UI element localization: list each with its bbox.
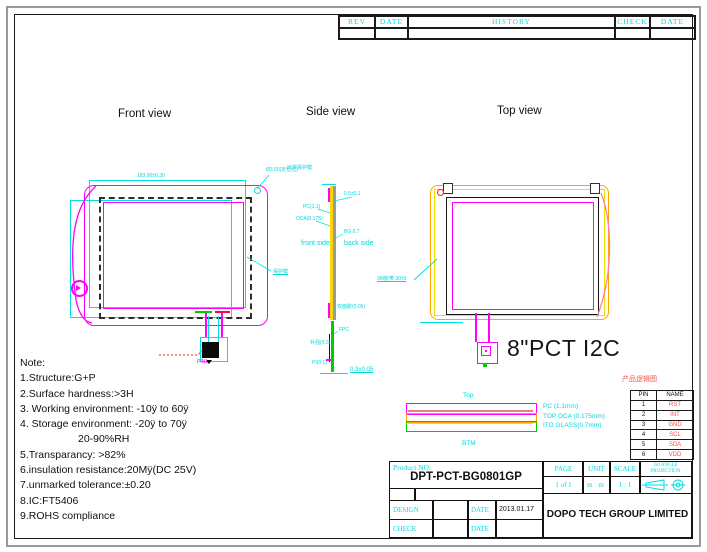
top-dim-line bbox=[420, 322, 463, 323]
scale-value-cell: 1 : 1 bbox=[609, 476, 641, 494]
side-back-side-label: back side bbox=[344, 240, 374, 247]
history-label: HISTORY bbox=[492, 17, 531, 26]
front-bond-mark-red bbox=[215, 311, 230, 313]
projection-symbol-cell bbox=[639, 476, 692, 494]
divider bbox=[414, 489, 416, 500]
ship-film-label: 出货保护膜 bbox=[287, 166, 312, 172]
side-fpc-label: FPC bbox=[339, 328, 349, 334]
note-line: 8.IC:FT5406 bbox=[20, 494, 380, 509]
notes-block: Note: 1.Structure:G+P 2.Surface hardness… bbox=[20, 356, 380, 524]
pin-number: 5 bbox=[631, 440, 657, 449]
front-film-callout: 保护膜 bbox=[273, 270, 288, 276]
empty-cell bbox=[376, 29, 409, 39]
side-glass-layer bbox=[333, 186, 336, 320]
pin-col-header: PIN bbox=[631, 391, 657, 400]
side-front-side-label: front side bbox=[301, 240, 330, 247]
front-pin1-label: PIN1 bbox=[197, 359, 208, 365]
stack-oca-label: TOP OCA (0.175mm) bbox=[543, 413, 605, 420]
pin-name: VDD bbox=[657, 450, 693, 459]
empty-cell bbox=[616, 29, 651, 39]
page-value: 1 of 1 bbox=[544, 481, 583, 489]
scale-value: 1 : 1 bbox=[610, 481, 640, 489]
note-line: 9.ROHS compliance bbox=[20, 509, 380, 524]
note-line: 1.Structure:G+P bbox=[20, 371, 380, 386]
design-date-label: DATE bbox=[471, 506, 489, 514]
top-connector-key bbox=[481, 346, 491, 356]
top-notch-left bbox=[443, 183, 453, 194]
design-label: DESIGN bbox=[393, 506, 419, 514]
side-pc-layer bbox=[330, 186, 333, 320]
product-no-cell: Product NO: DPT-PCT-BG0801GP bbox=[389, 461, 543, 489]
pin-number: 4 bbox=[631, 430, 657, 439]
logo-arrow-icon bbox=[76, 285, 81, 291]
third-angle-projection-icon bbox=[642, 479, 690, 492]
tape-callout-label: 3M胶带 30±5 bbox=[377, 277, 406, 283]
check-date-value-cell bbox=[495, 519, 543, 539]
note-line: 4. Storage environment: -20ÿ to 70ÿ bbox=[20, 417, 380, 432]
stack-pc-film-line bbox=[408, 410, 533, 412]
side-glass-label: BG 0.7 bbox=[344, 230, 360, 236]
pin-row-4: 4SCL bbox=[631, 430, 693, 440]
empty-cell bbox=[651, 29, 694, 39]
pin-row-6: 6VDD bbox=[631, 450, 693, 459]
note-line: 2.Surface hardness:>3H bbox=[20, 387, 380, 402]
front-locating-hole bbox=[254, 187, 261, 194]
stack-ito-line bbox=[408, 423, 533, 425]
unit-label: UNIT bbox=[583, 465, 610, 473]
design-sign-cell bbox=[432, 500, 469, 520]
pin-number: 6 bbox=[631, 450, 657, 459]
note-line: 5.Transparancy: >82% bbox=[20, 448, 380, 463]
pin-table-caption: 产品逻辑图 bbox=[622, 374, 657, 384]
revision-header-row: REV DATE HISTORY CHECK DATE bbox=[340, 17, 694, 29]
name-col-header: NAME bbox=[657, 391, 693, 400]
date2-label: DATE bbox=[661, 17, 684, 26]
front-view-title: Front view bbox=[118, 108, 171, 120]
note-line: 3. Working environment: -10ÿ to 60ÿ bbox=[20, 402, 380, 417]
top-notch-right bbox=[590, 183, 600, 194]
scale-label: SCALE bbox=[610, 465, 640, 473]
rev-label: REV bbox=[348, 17, 366, 26]
stack-layer-glass bbox=[406, 421, 537, 432]
design-date-value-cell: 2013.01.17 bbox=[495, 500, 543, 520]
design-date-label-cell: DATE bbox=[467, 500, 497, 520]
unit-value: m m bbox=[583, 481, 610, 489]
design-date-value: 2013.01.17 bbox=[499, 506, 534, 513]
revision-history-table: REV DATE HISTORY CHECK DATE bbox=[338, 15, 696, 40]
pin-name: SCL bbox=[657, 430, 693, 439]
front-active-area-magenta bbox=[103, 202, 244, 309]
top-active-area-magenta bbox=[452, 202, 594, 310]
top-tail-end-green bbox=[483, 363, 487, 367]
side-stiffener-label: 补强(0.3) bbox=[310, 341, 330, 347]
top-tail-left bbox=[475, 313, 477, 342]
company-name: DOPO TECH GROUP LIMITED bbox=[544, 509, 691, 520]
pin-definition-table: PIN NAME 1RST 2INT 3GND 4SCL 5SDA 6VDD bbox=[630, 390, 694, 460]
side-tape-bottom bbox=[328, 303, 330, 318]
check-row-label: CHECK bbox=[393, 525, 417, 533]
pin-name: RST bbox=[657, 401, 693, 410]
revision-empty-row bbox=[340, 29, 694, 39]
side-adhesive-label: 双面胶(0.05) bbox=[337, 305, 365, 311]
date-label: DATE bbox=[380, 17, 403, 26]
empty-cell bbox=[340, 29, 376, 39]
side-top-tick bbox=[322, 184, 336, 185]
check-date-label: DATE bbox=[471, 525, 489, 533]
pin-number: 3 bbox=[631, 421, 657, 430]
top-connector-outline bbox=[477, 342, 498, 364]
check-date-label-cell: DATE bbox=[467, 519, 497, 539]
side-bottom-dim-label: 0.3±0.05 bbox=[350, 367, 373, 373]
top-view-title: Top view bbox=[497, 105, 542, 117]
side-tape-top bbox=[328, 188, 330, 202]
check-label-cell: CHECK bbox=[389, 519, 434, 539]
date-col-header: DATE bbox=[376, 17, 409, 27]
front-tail-edge-right bbox=[221, 313, 223, 338]
side-gap-label: 0.5±0.1 bbox=[344, 192, 361, 198]
front-tail-edge-left bbox=[205, 313, 207, 338]
empty-cell bbox=[409, 29, 616, 39]
pin-table-header: PIN NAME bbox=[631, 391, 693, 401]
stack-pc-label: PC (1.1mm) bbox=[543, 403, 578, 410]
side-oca-label: OCA(0.175) bbox=[296, 217, 323, 223]
note-line: 20-90%RH bbox=[20, 432, 380, 447]
drawing-sheet: REV DATE HISTORY CHECK DATE Front view 1… bbox=[0, 0, 707, 552]
front-logo-mark bbox=[71, 280, 88, 297]
stack-glass-label: ITO GLASS(0.7mm) bbox=[543, 422, 601, 429]
check-col-header: CHECK bbox=[616, 17, 651, 27]
company-cell: DOPO TECH GROUP LIMITED bbox=[543, 493, 692, 538]
pin-name: SDA bbox=[657, 440, 693, 449]
history-col-header: HISTORY bbox=[409, 17, 616, 27]
check-sign-cell bbox=[432, 519, 469, 539]
pin-number: 2 bbox=[631, 411, 657, 420]
page-label: PAGE bbox=[544, 465, 583, 473]
note-line: 6.insulation resistance:20Mÿ(DC 25V) bbox=[20, 463, 380, 478]
rev-col-header: REV bbox=[340, 17, 376, 27]
pin-number: 1 bbox=[631, 401, 657, 410]
date2-col-header: DATE bbox=[651, 17, 694, 27]
front-bond-mark-green bbox=[195, 311, 212, 313]
connector-dot-icon bbox=[485, 350, 487, 352]
pin-name: INT bbox=[657, 411, 693, 420]
unit-value-cell: m m bbox=[582, 476, 611, 494]
check-label: CHECK bbox=[617, 17, 647, 26]
stack-top-label: Top bbox=[463, 392, 473, 399]
product-no-value: DPT-PCT-BG0801GP bbox=[390, 471, 542, 483]
design-label-cell: DESIGN bbox=[389, 500, 434, 520]
pin-row-3: 3GND bbox=[631, 421, 693, 431]
pin-row-2: 2INT bbox=[631, 411, 693, 421]
page-value-cell: 1 of 1 bbox=[543, 476, 584, 494]
pin-name: GND bbox=[657, 421, 693, 430]
top-tail-right bbox=[488, 313, 490, 342]
side-film-label: PI(0.1) bbox=[312, 361, 327, 367]
pin-row-5: 5SDA bbox=[631, 440, 693, 450]
note-line: 7.unmarked tolerance:±0.20 bbox=[20, 478, 380, 493]
projection-label-line2: PROJECTION bbox=[640, 469, 691, 475]
product-size-text: 8"PCT I2C bbox=[507, 335, 620, 362]
pin-row-1: 1RST bbox=[631, 401, 693, 411]
top-locating-hole bbox=[437, 189, 444, 196]
stack-btm-label: BTM bbox=[462, 440, 476, 447]
side-pc-label: PC(1.1) bbox=[303, 205, 320, 211]
front-top-dimension: 183.00±0.30 bbox=[137, 174, 165, 180]
side-view-title: Side view bbox=[306, 106, 355, 118]
